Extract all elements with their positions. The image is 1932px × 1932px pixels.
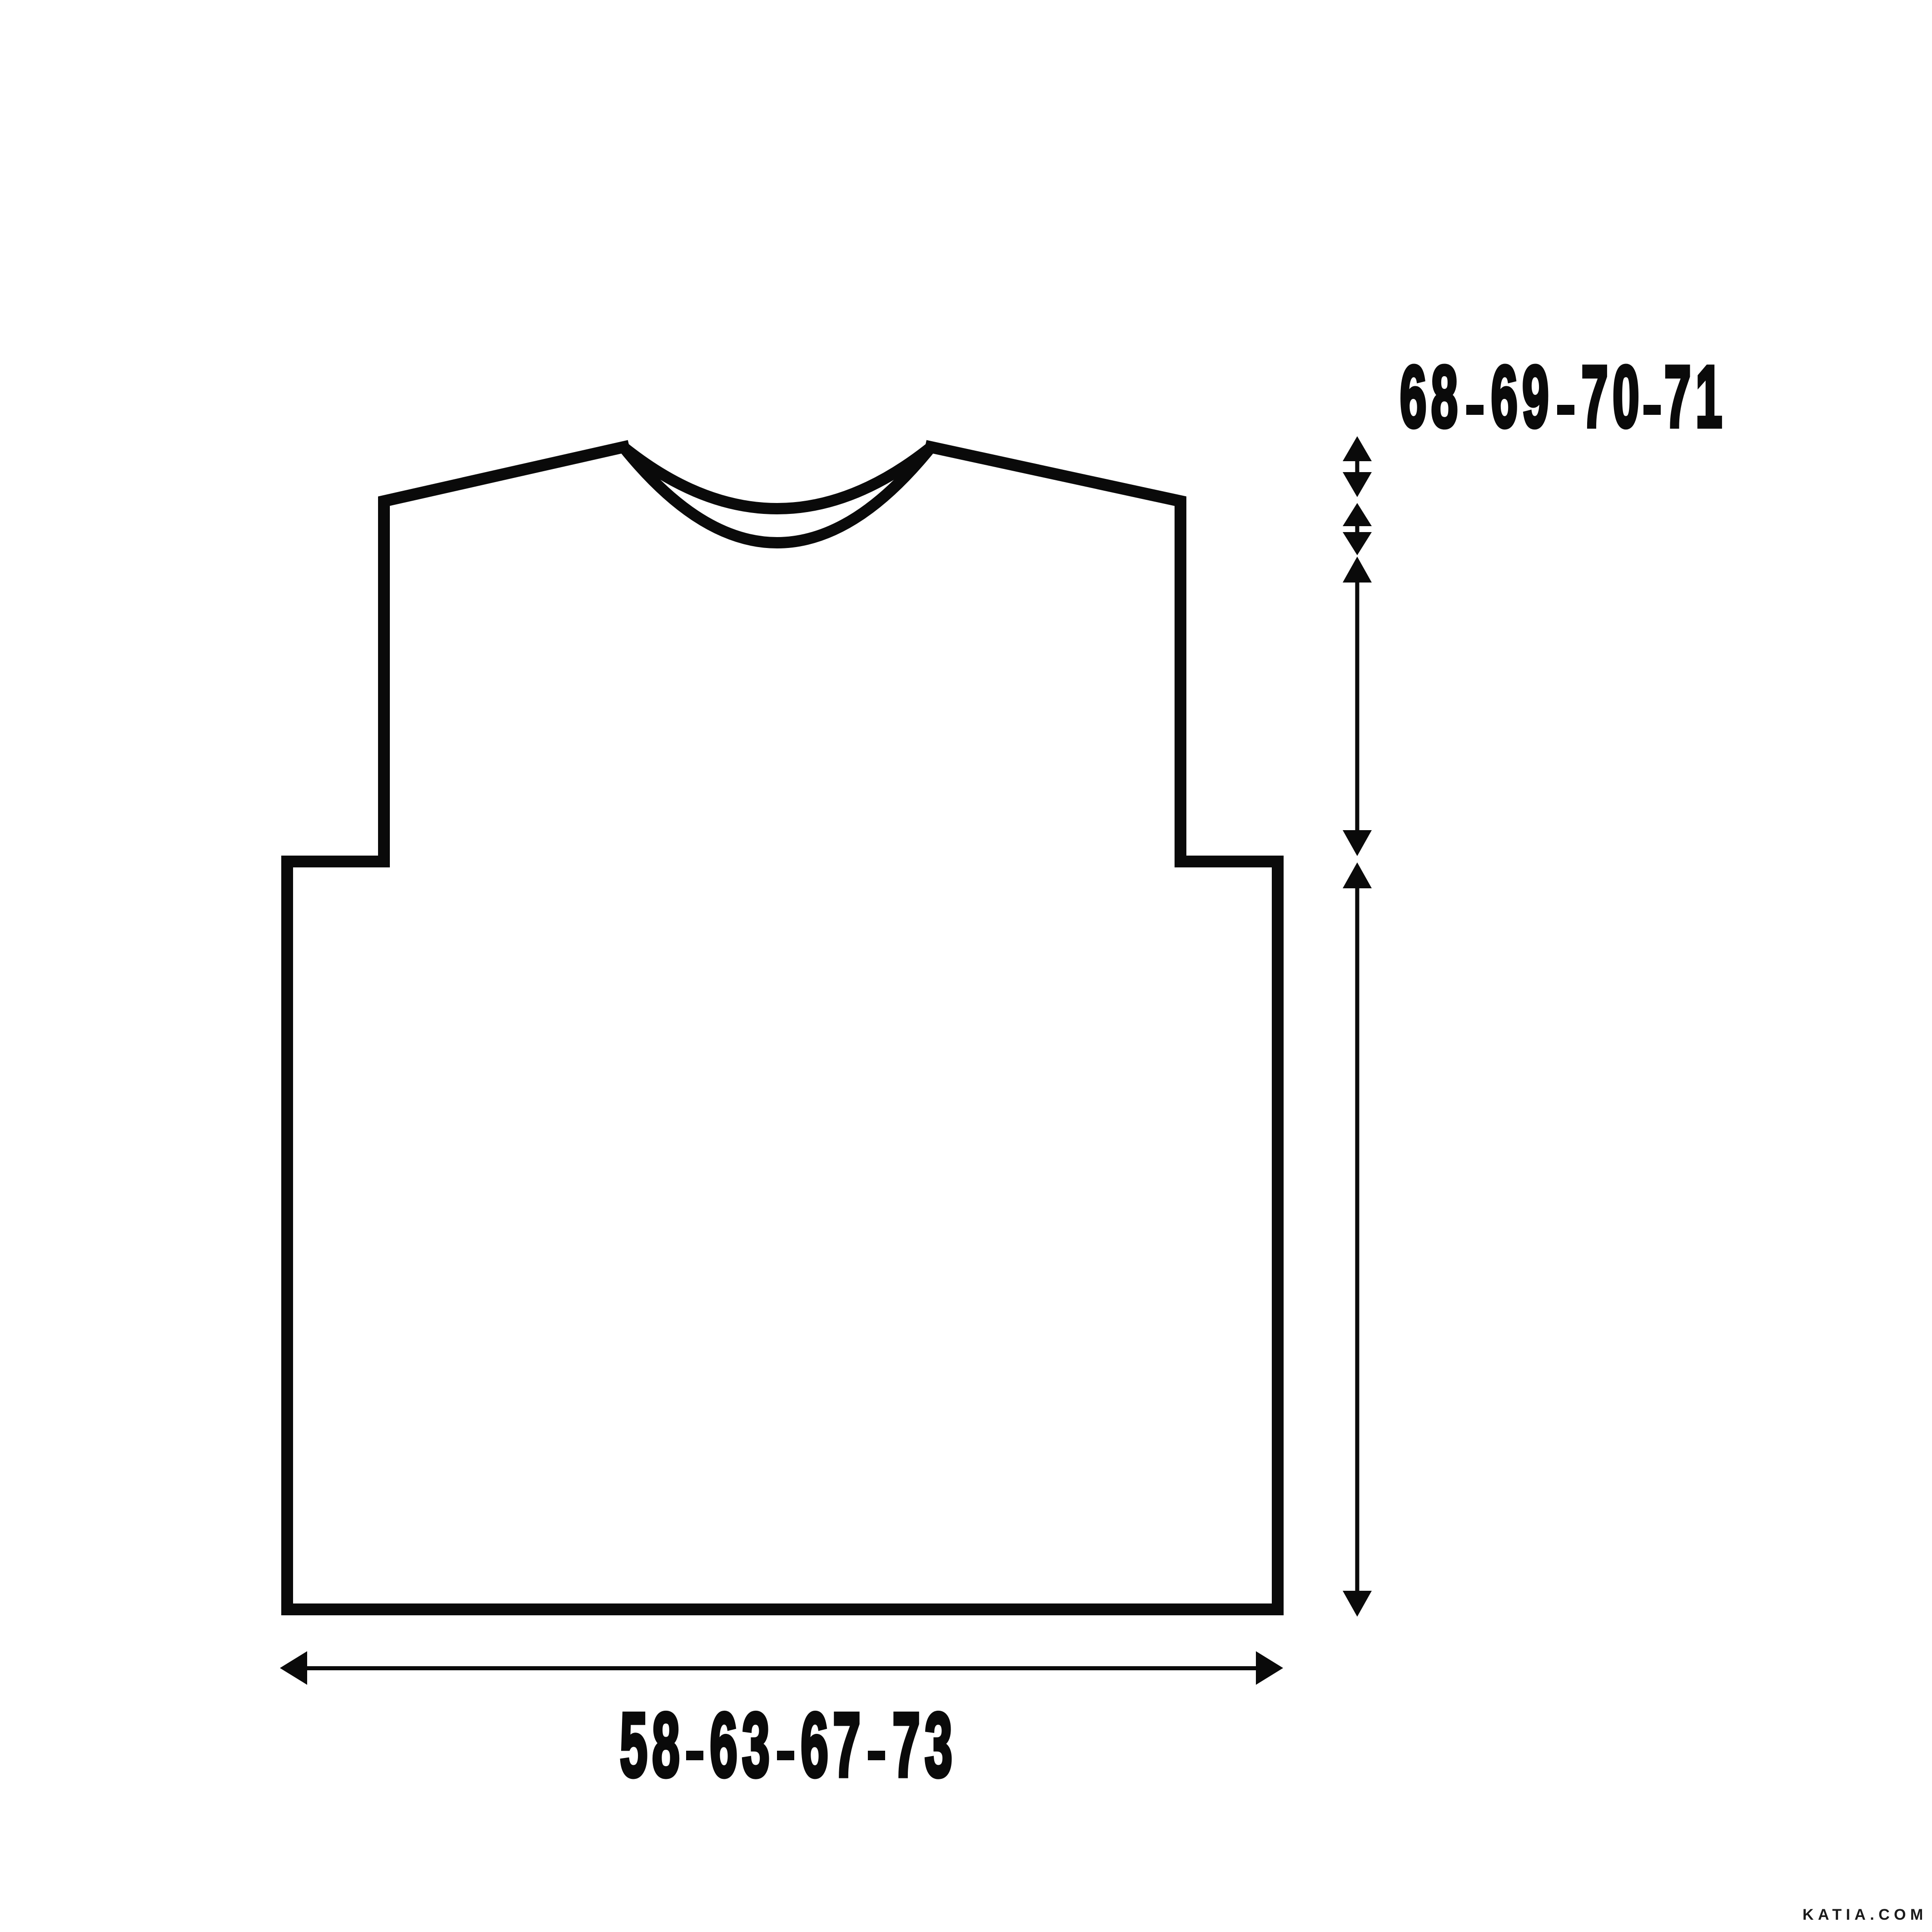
svg-text:63: 63 <box>710 1694 774 1796</box>
svg-text:73: 73 <box>892 1694 957 1796</box>
svg-text:69: 69 <box>1491 348 1554 445</box>
svg-text:71: 71 <box>1664 348 1727 445</box>
svg-text:68: 68 <box>1400 348 1463 445</box>
svg-text:70: 70 <box>1581 348 1644 445</box>
svg-text:KATIA.COM: KATIA.COM <box>1803 1906 1927 1923</box>
svg-text:58: 58 <box>620 1694 684 1796</box>
svg-text:67: 67 <box>801 1694 865 1796</box>
